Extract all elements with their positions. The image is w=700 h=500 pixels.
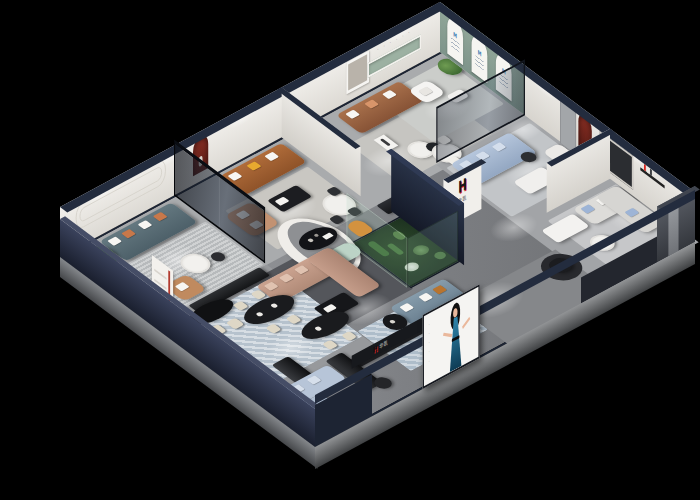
pillow <box>580 204 595 213</box>
vase <box>313 233 319 237</box>
pillow <box>107 236 122 245</box>
sign-logo-name: 华凯 <box>379 338 388 352</box>
cushion <box>492 142 507 151</box>
pillow <box>294 265 309 274</box>
pillow <box>228 172 243 181</box>
model-arm <box>462 317 470 329</box>
cushion <box>175 282 190 291</box>
papers <box>322 232 334 239</box>
showroom-render: · · · · · · M M M <box>0 0 700 500</box>
pillow <box>382 90 397 99</box>
figurine <box>380 138 391 146</box>
plate <box>270 303 279 309</box>
plate <box>255 311 264 317</box>
model-arm <box>443 333 452 337</box>
vase <box>307 238 314 243</box>
pillow <box>279 273 294 282</box>
billboard-side-text: · · · · · <box>427 322 431 365</box>
pillow <box>432 285 447 294</box>
cushion <box>418 87 433 96</box>
pillow <box>138 220 153 229</box>
pillow <box>345 110 360 119</box>
pillow <box>364 99 379 108</box>
pillow <box>153 212 168 221</box>
glass-mullion <box>219 177 220 227</box>
shelf-line <box>154 269 166 280</box>
pillow <box>418 292 433 301</box>
tray <box>275 197 290 206</box>
pillow <box>264 281 279 290</box>
pillow <box>121 229 136 238</box>
pillow <box>624 208 639 217</box>
pillow <box>264 152 279 161</box>
sign-logo-h: H <box>373 344 377 354</box>
pillow <box>247 161 262 170</box>
cushion <box>307 375 322 384</box>
decor <box>389 319 396 324</box>
plate <box>314 326 323 332</box>
pillow <box>399 303 414 312</box>
